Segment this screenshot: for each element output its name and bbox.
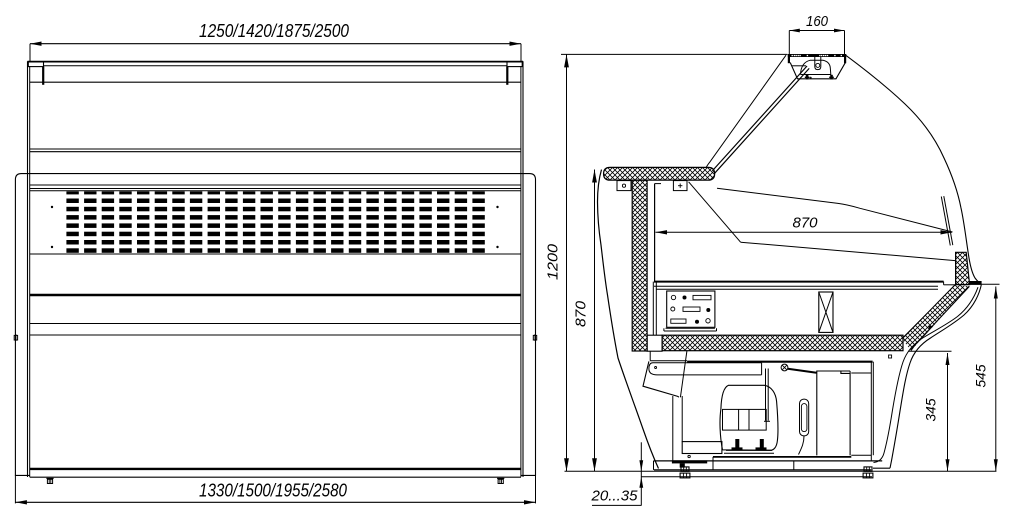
svg-text:1200: 1200 bbox=[546, 244, 562, 280]
svg-text:870: 870 bbox=[574, 301, 590, 327]
svg-text:1330/1500/1955/2580: 1330/1500/1955/2580 bbox=[199, 481, 347, 501]
svg-text:870: 870 bbox=[793, 216, 818, 232]
svg-text:20...35: 20...35 bbox=[590, 488, 638, 504]
svg-text:345: 345 bbox=[923, 398, 939, 421]
svg-text:545: 545 bbox=[973, 364, 989, 387]
svg-text:160: 160 bbox=[806, 14, 828, 30]
svg-text:1250/1420/1875/2500: 1250/1420/1875/2500 bbox=[199, 21, 349, 41]
